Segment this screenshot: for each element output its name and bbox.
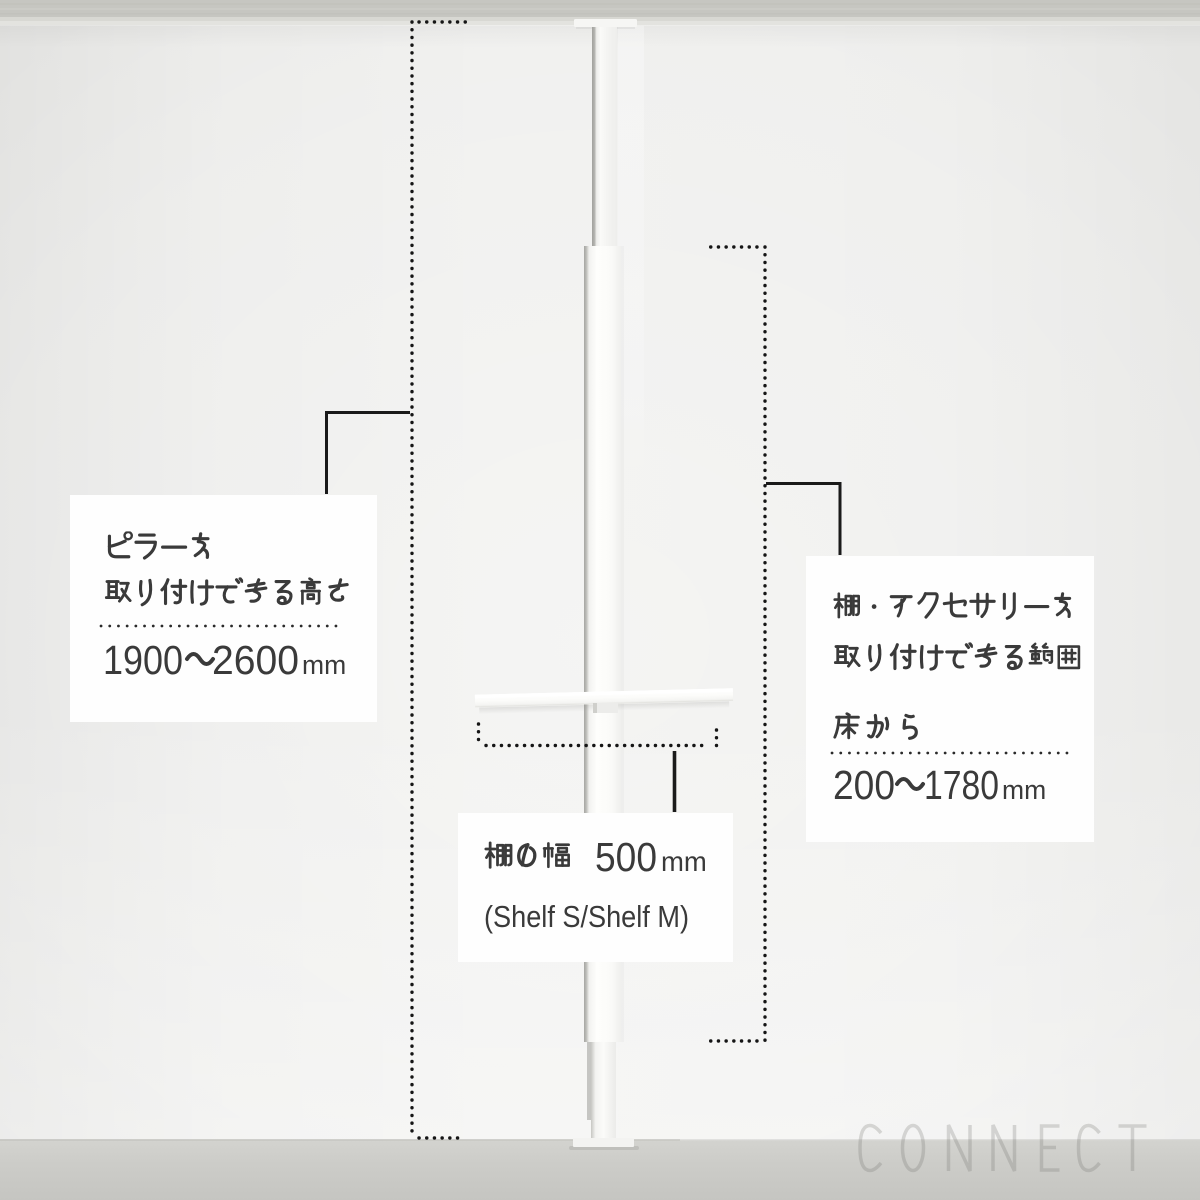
svg-text:2600: 2600 [212,637,299,683]
svg-text:(Shelf S/Shelf M): (Shelf S/Shelf M) [484,899,689,934]
svg-text:mm: mm [302,650,346,680]
svg-text:500: 500 [595,834,657,880]
svg-text:1780: 1780 [924,762,999,808]
svg-text:1900: 1900 [103,637,183,683]
svg-text:200: 200 [833,762,895,808]
svg-text:mm: mm [1002,775,1046,805]
svg-text:mm: mm [661,846,707,877]
